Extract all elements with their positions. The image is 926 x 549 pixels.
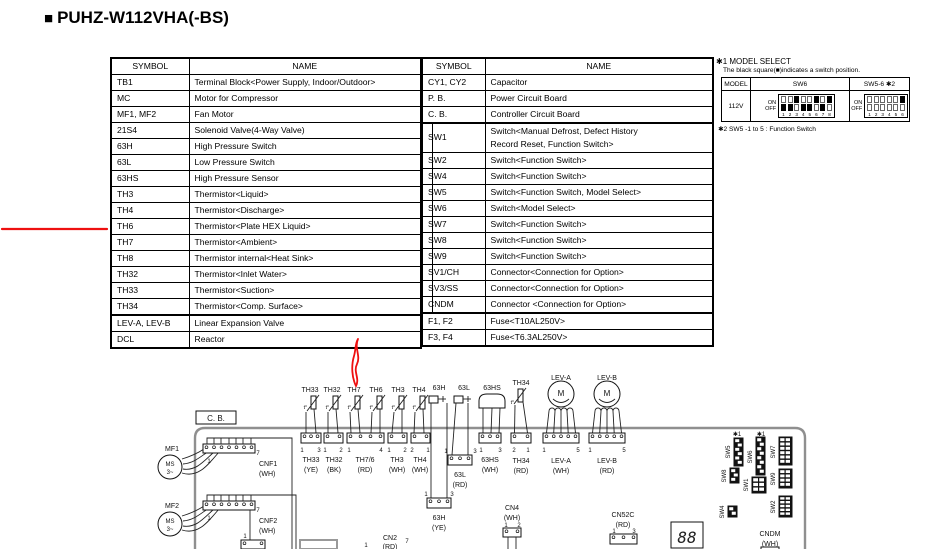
svg-text:1: 1 — [323, 448, 327, 454]
svg-text:(YE): (YE) — [432, 525, 446, 532]
63l-label: 63L — [458, 385, 470, 392]
63hs-conn-label: 63HS — [481, 457, 499, 464]
lev-a-group: LEV-A M 1 5 LEV-A (WH) — [542, 375, 580, 475]
svg-text:4: 4 — [379, 448, 383, 454]
svg-text:1: 1 — [364, 543, 368, 549]
th3-conn-label: TH3 — [390, 457, 403, 464]
63hs-label: 63HS — [483, 385, 501, 392]
th76-conn-label: TH7/6 — [355, 457, 374, 464]
svg-text:M: M — [604, 389, 611, 398]
svg-text:(RD): (RD) — [600, 468, 615, 475]
cn2-group: 1 CN2 (RD) 7 — [364, 535, 409, 549]
controller-board-outline — [195, 428, 805, 549]
cndm-label: CNDM — [760, 531, 781, 538]
cn52c-group: CN52C (RD) 1 3 — [610, 512, 637, 544]
lev-a-conn-label: LEV-A — [551, 458, 571, 465]
sw4-label: SW4 — [720, 505, 726, 519]
63l-conn-label: 63L — [454, 472, 466, 479]
star1-marker: ✱1 — [733, 431, 742, 438]
th7-label: TH7 — [347, 387, 360, 394]
svg-text:(RD): (RD) — [453, 482, 468, 489]
sw5-label: SW5 — [726, 445, 732, 459]
cn4-label: CN4 — [505, 505, 519, 512]
svg-text:1: 1 — [542, 448, 546, 454]
mf2-ms: MS — [166, 519, 175, 525]
svg-text:7: 7 — [405, 539, 409, 545]
mf2-label: MF2 — [165, 503, 179, 510]
svg-text:t°: t° — [326, 405, 329, 411]
th4-label: TH4 — [412, 387, 425, 394]
svg-text:(RD): (RD) — [616, 522, 631, 529]
cn52c-label: CN52C — [612, 512, 635, 519]
svg-text:1: 1 — [424, 492, 428, 498]
svg-text:3: 3 — [450, 492, 454, 498]
svg-text:(RD): (RD) — [383, 544, 398, 549]
transformer-box — [300, 540, 337, 549]
svg-text:t°: t° — [370, 405, 373, 411]
svg-text:1: 1 — [426, 448, 430, 454]
connector-cnf2: 1 7 CNF2 (WH) — [203, 501, 277, 535]
svg-text:3: 3 — [473, 449, 477, 455]
thermistor-connectors: 1 3 TH33 (YE) 1 2 TH32 (BK) 1 4 TH7/6 (R… — [300, 433, 430, 474]
svg-text:M: M — [558, 389, 565, 398]
bottom-misc: 1 — [241, 534, 337, 549]
svg-text:(YE): (YE) — [304, 467, 318, 474]
cnf1-color: (WH) — [259, 471, 275, 478]
onboard-dip-switches: ✱1 ✱1 SW5 SW8 SW6 SW1 SW4 SW7 SW9 SW2 — [720, 431, 792, 519]
svg-text:(WH): (WH) — [504, 515, 520, 522]
wiring-diagram: C. B. MF1 MS 3~ MF2 MS 3~ 1 7 CNF1 (WH) … — [0, 0, 926, 549]
sw2-label: SW2 — [771, 500, 777, 514]
svg-text:1: 1 — [347, 448, 351, 454]
svg-text:5: 5 — [622, 448, 626, 454]
svg-text:(WH): (WH) — [412, 467, 428, 474]
63h-conn-label: 63H — [433, 515, 446, 522]
svg-text:(WH): (WH) — [389, 467, 405, 474]
svg-text:(WH): (WH) — [553, 468, 569, 475]
svg-text:1: 1 — [479, 448, 483, 454]
th32-conn-label: TH32 — [325, 457, 342, 464]
svg-text:2: 2 — [339, 448, 343, 454]
sw9-label: SW9 — [771, 472, 777, 486]
th32-label: TH32 — [323, 387, 340, 394]
sw8-label: SW8 — [722, 469, 728, 483]
svg-text:(WH): (WH) — [482, 467, 498, 474]
svg-text:t°: t° — [511, 400, 514, 406]
mf2-phase: 3~ — [167, 527, 174, 533]
cnf2-color: (WH) — [259, 528, 275, 535]
svg-text:1: 1 — [243, 534, 247, 540]
th6-label: TH6 — [369, 387, 382, 394]
th33-conn-label: TH33 — [302, 457, 319, 464]
red-annotation-scribble — [352, 339, 358, 386]
svg-text:t°: t° — [304, 405, 307, 411]
display-value: 88 — [677, 528, 696, 547]
connector-cnf1: 1 7 CNF1 (WH) — [203, 444, 277, 478]
mf1-label: MF1 — [165, 446, 179, 453]
svg-text:1: 1 — [300, 448, 304, 454]
cnf2-label: CNF2 — [259, 518, 277, 525]
svg-text:2: 2 — [512, 448, 516, 454]
svg-text:1: 1 — [588, 448, 592, 454]
sw1-label: SW1 — [744, 478, 750, 492]
th4-conn-label: TH4 — [413, 457, 426, 464]
cnf1-label: CNF1 — [259, 461, 277, 468]
cn2-label: CN2 — [383, 535, 397, 542]
svg-text:(RD): (RD) — [514, 468, 529, 475]
63h-label: 63H — [433, 385, 446, 392]
mf1-ms: MS — [166, 462, 175, 468]
th33-label: TH33 — [301, 387, 318, 394]
lev-b-group: LEV-B M 1 5 LEV-B (RD) — [588, 375, 626, 475]
thermistor-row: TH33 TH32 TH7 TH6 TH3 TH4 — [301, 387, 425, 394]
th34-label: TH34 — [512, 380, 529, 387]
lev-b-conn-label: LEV-B — [597, 458, 617, 465]
cb-label: C. B. — [207, 414, 225, 423]
svg-text:1: 1 — [444, 449, 448, 455]
svg-text:5: 5 — [576, 448, 580, 454]
cndm-group: CNDM (WH) — [760, 531, 781, 549]
cnf2-pin7: 7 — [256, 508, 260, 514]
pressure-connectors: 1 3 63HS (WH) 1 3 63L (RD) 1 3 63H (YE) — [424, 433, 502, 532]
cnf1-pin7: 7 — [256, 451, 260, 457]
svg-text:(BK): (BK) — [327, 467, 341, 474]
th3-label: TH3 — [391, 387, 404, 394]
svg-text:t°: t° — [413, 405, 416, 411]
seven-segment-display: 88 — [671, 522, 703, 548]
svg-text:2: 2 — [410, 448, 414, 454]
svg-text:3: 3 — [498, 448, 502, 454]
manual-page: { "title_bullet": "■", "title": "PUHZ-W1… — [0, 0, 926, 549]
svg-text:1: 1 — [526, 448, 530, 454]
svg-text:1: 1 — [387, 448, 391, 454]
sw6-label: SW6 — [748, 450, 754, 464]
svg-text:(RD): (RD) — [358, 467, 373, 474]
th34-conn-label: TH34 — [512, 458, 529, 465]
svg-text:t°: t° — [348, 405, 351, 411]
svg-text:t°: t° — [392, 405, 395, 411]
svg-text:2: 2 — [403, 448, 407, 454]
cn4-group: CN4 (WH) 1 2 — [503, 505, 521, 549]
mf1-phase: 3~ — [167, 470, 174, 476]
svg-text:3: 3 — [317, 448, 321, 454]
board-bus-wires — [207, 438, 296, 549]
sw7-label: SW7 — [771, 445, 777, 459]
